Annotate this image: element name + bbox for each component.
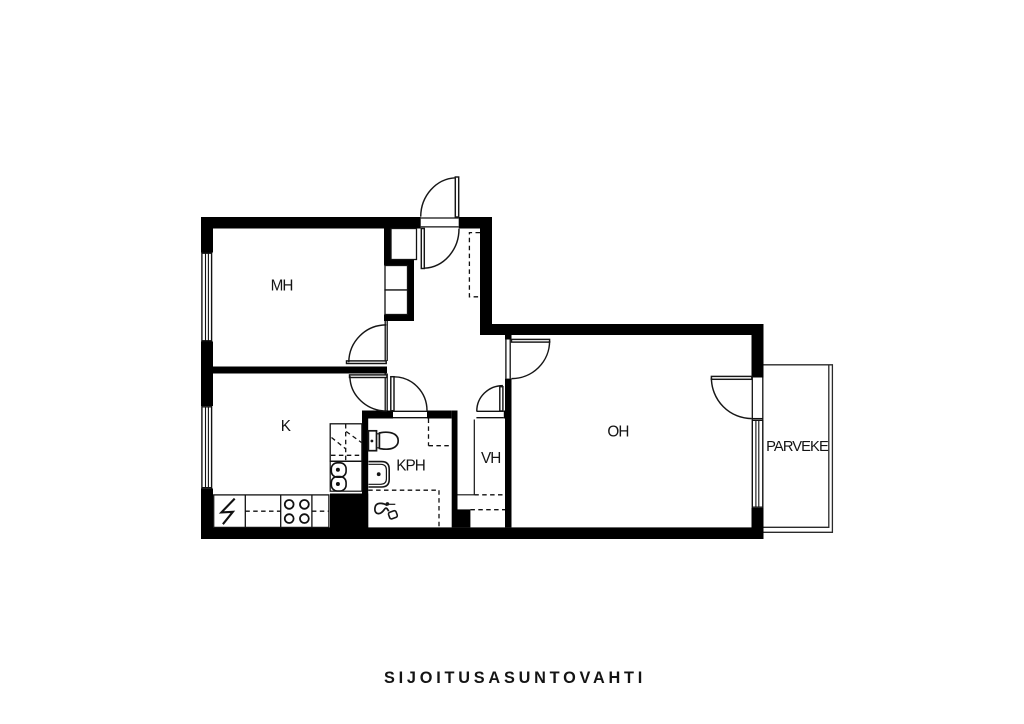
svg-text:KPH: KPH	[396, 458, 425, 475]
svg-text:K: K	[281, 418, 292, 435]
svg-text:SIJOITUSASUNTOVAHTI: SIJOITUSASUNTOVAHTI	[384, 669, 646, 687]
svg-text:OH: OH	[607, 423, 628, 440]
svg-text:PARVEKE: PARVEKE	[766, 439, 829, 455]
svg-text:VH: VH	[481, 450, 500, 467]
svg-text:MH: MH	[271, 278, 293, 295]
